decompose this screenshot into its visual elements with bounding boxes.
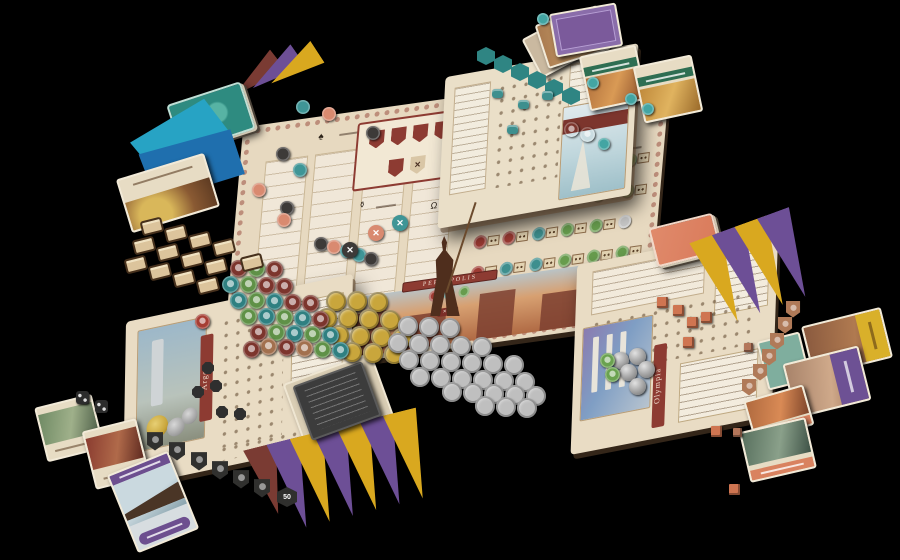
market-value-tile	[513, 261, 526, 273]
tabletop-scene: ♠ ✕ ⚱ Ω ✕ PERSEPOLIS	[0, 0, 900, 560]
silver-coin	[517, 398, 537, 418]
shield-icon	[368, 129, 385, 150]
market-token	[560, 222, 574, 237]
market-card	[633, 54, 704, 123]
silver-coin	[484, 384, 504, 404]
silver-coin	[526, 386, 546, 406]
market-token	[499, 261, 513, 276]
temple-column	[619, 331, 627, 387]
silver-coin	[420, 351, 440, 371]
scroll-token	[204, 256, 229, 276]
market-value-tile	[571, 253, 584, 265]
market-token	[531, 226, 545, 241]
silver-coin	[475, 396, 495, 416]
silver-coin	[483, 354, 503, 374]
black-shield-token	[233, 470, 250, 489]
market-cell	[530, 217, 559, 250]
silver-coin	[410, 367, 430, 387]
shield-icon	[390, 126, 407, 147]
board-panel	[449, 81, 491, 196]
market-cell	[473, 225, 502, 258]
market-cell	[559, 213, 588, 246]
column-header-icon: ♠	[318, 131, 324, 143]
tax-icon: ⚱	[358, 200, 365, 210]
silver-coin	[442, 382, 462, 402]
market-token	[502, 230, 516, 245]
silver-shield-pile	[181, 406, 197, 426]
silver-coin	[473, 370, 493, 390]
silver-coin	[496, 397, 516, 417]
scroll-token	[188, 230, 213, 250]
black-die	[95, 400, 108, 413]
shield-icon: ✕	[409, 154, 426, 175]
market-token	[473, 235, 487, 250]
market-value-tile	[545, 226, 558, 238]
card-back-frame	[556, 9, 617, 50]
silver-coin	[505, 385, 525, 405]
market-value-tile	[637, 152, 650, 164]
market-token	[557, 253, 571, 268]
scroll-token	[172, 268, 197, 288]
market-value-tile	[634, 183, 647, 195]
statue-column	[150, 338, 163, 406]
silver-coin	[463, 383, 483, 403]
silver-coin	[452, 369, 472, 389]
track-disc	[296, 100, 310, 114]
copper-shield-token	[786, 301, 801, 318]
market-value-tile	[603, 218, 616, 230]
market-token	[589, 218, 603, 233]
olympia-name-banner: Olympia	[651, 342, 667, 428]
green-token-slot	[458, 285, 470, 298]
argos-name-banner: Argos	[199, 333, 213, 422]
silver-coin	[504, 355, 524, 375]
building-silhouette	[353, 310, 387, 357]
dock-beam	[562, 109, 628, 135]
silver-coin	[462, 353, 482, 373]
market-value-tile	[487, 234, 500, 246]
teal-hex-token	[477, 47, 495, 65]
market-value-tile	[574, 222, 587, 234]
harbor-artwork	[558, 95, 630, 200]
tech-track-dots	[491, 72, 562, 190]
card-text-line	[868, 321, 878, 350]
gold-pile	[146, 413, 168, 440]
copper-shield-token	[778, 317, 793, 334]
market-cell	[588, 209, 617, 242]
event-card	[116, 153, 220, 233]
scroll-token	[132, 235, 157, 255]
olympia-artwork	[580, 314, 654, 421]
market-cell	[617, 205, 646, 238]
market-value-tile	[516, 230, 529, 242]
market-token	[618, 214, 632, 229]
market-cell	[501, 221, 530, 254]
silver-coin	[441, 352, 461, 372]
ship-sail	[571, 138, 593, 192]
building-track-dots	[219, 305, 285, 448]
silver-coin	[494, 371, 514, 391]
temple-column	[605, 334, 613, 390]
scroll-token	[148, 261, 173, 281]
scroll-token	[180, 249, 205, 269]
scroll-token	[124, 254, 149, 274]
scroll-token	[164, 223, 189, 243]
scroll-token	[196, 275, 221, 295]
card-text-lines	[304, 372, 369, 430]
debts-icon: Ω	[430, 200, 438, 211]
market-token	[528, 257, 542, 272]
card-text-line	[147, 523, 183, 539]
silver-coin	[431, 368, 451, 388]
silver-coin	[515, 372, 535, 392]
market-value-tile	[542, 257, 555, 269]
temple-column	[591, 337, 599, 393]
card-text-line	[844, 361, 854, 392]
scroll-token	[156, 242, 181, 262]
orange-cube	[729, 484, 740, 495]
argos-artwork	[135, 316, 207, 453]
card-text-line	[760, 463, 804, 475]
shield-icon	[412, 123, 429, 144]
shield-icon	[387, 157, 404, 178]
card-text-line	[133, 166, 192, 186]
